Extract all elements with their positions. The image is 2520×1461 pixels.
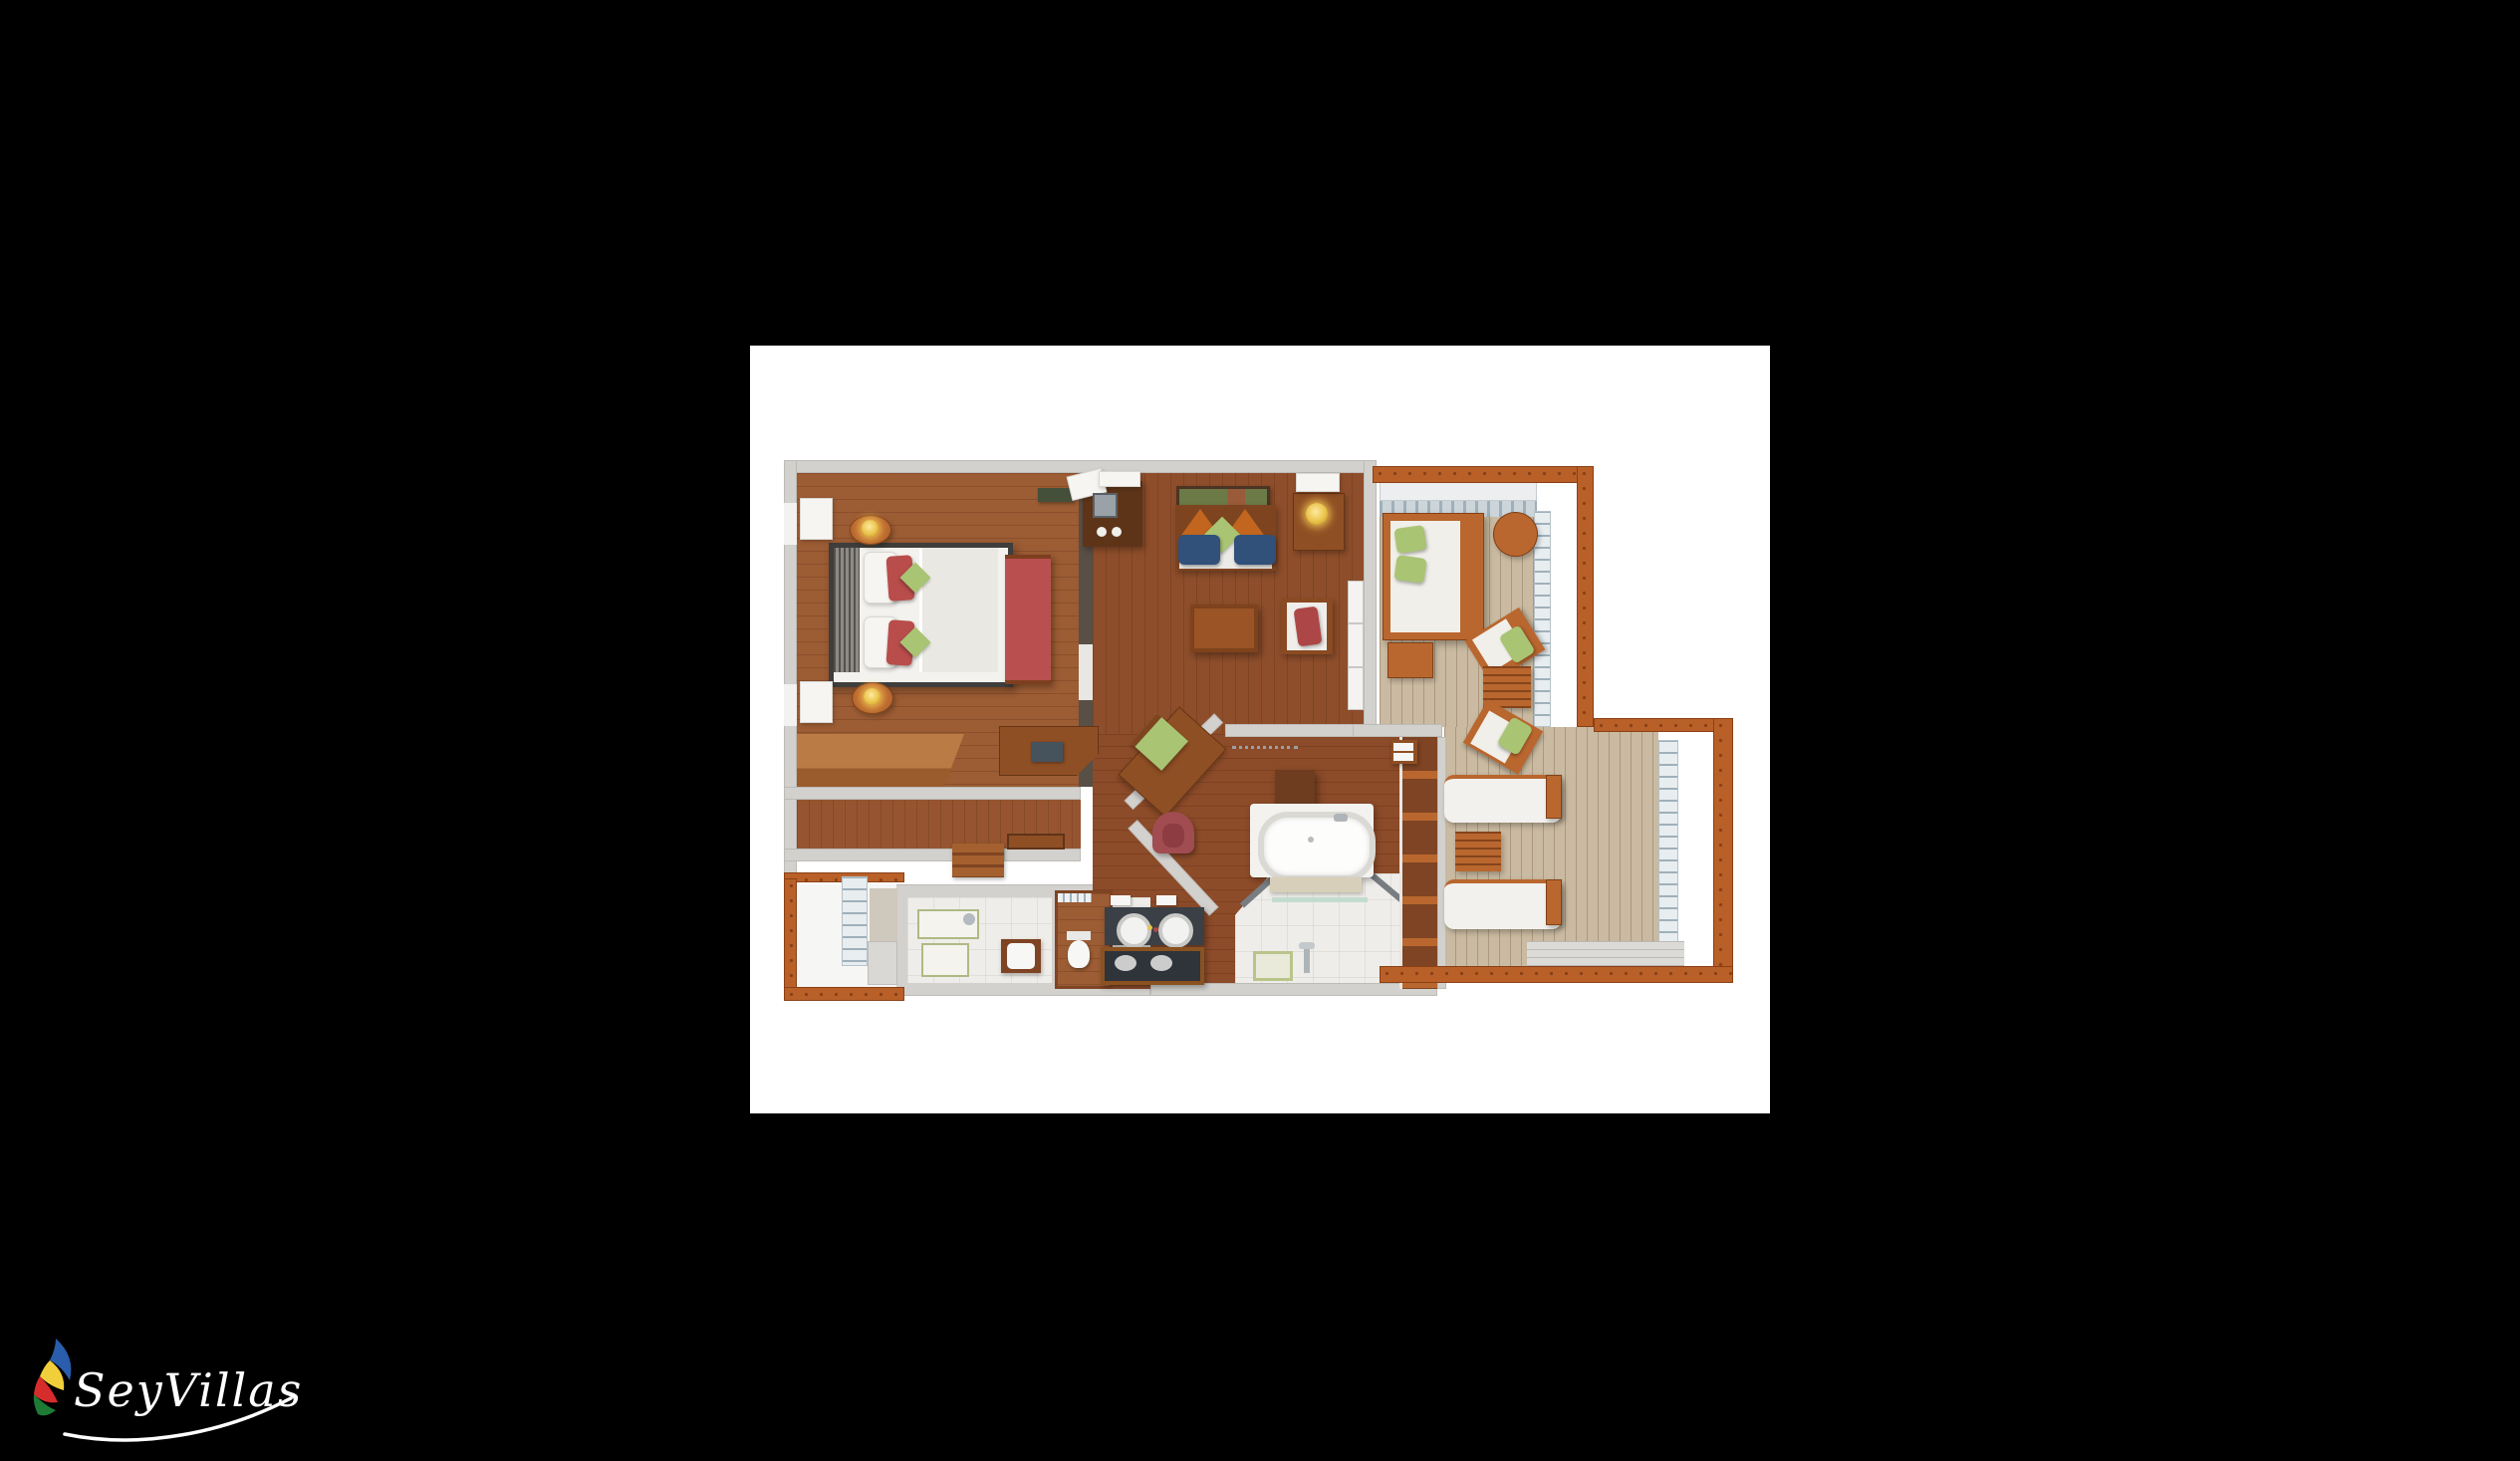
corridor-bench-tray [1007,834,1065,850]
porch-panel [870,888,897,941]
veranda-frame-right-lower [1713,718,1733,983]
wall-top [784,460,1377,473]
cabinet-door-leaf [1296,473,1340,492]
wall-bedroom-bottom [784,787,1081,800]
daybed-pillow-1 [1393,525,1426,554]
wall-corridor-bottom-left [784,849,954,861]
divider-door-white [1079,644,1093,700]
red-chair-seat [1162,824,1184,848]
hanging-rail [1232,738,1298,749]
porch-railing [842,876,868,966]
porch-frame-left [784,878,797,996]
veranda-frame-top-lower [1594,718,1733,732]
louvre-shelf-wall [1399,737,1437,989]
bathtub-drain [1308,837,1314,843]
curtain-1 [800,498,833,540]
wc-toilet-lid [1007,943,1035,969]
seyvillas-logo: SeyVillas [12,1333,351,1454]
daybed-pillow-2 [1393,555,1426,584]
window-bedroom-2 [784,684,797,726]
corridor-steps [952,844,1004,877]
daybed-side-table [1387,642,1433,678]
curtain-2 [800,681,833,723]
pergola-beam [1380,481,1537,501]
outdoor-toilet [1068,940,1090,968]
vanity-basin-2 [1158,913,1193,948]
sun-lounger-1 [1444,775,1562,823]
dresser [797,734,964,787]
towel-bench [1270,877,1362,892]
veranda-frame-bottom [1380,966,1733,983]
porch-step [868,941,897,985]
wc-tap [963,913,975,925]
wall-bath-top-right [1353,724,1442,737]
sofa-cushion-blue-2 [1234,535,1276,565]
floorplan [750,346,1770,1113]
desk-laptop [1031,742,1063,762]
porch-frame-bottom [784,987,904,1001]
rack-towel-1 [1393,743,1413,751]
wall-bath-right-face [1437,737,1446,989]
bath-mat [1253,951,1293,981]
sun-lounger-2-headrest [1546,879,1562,925]
window-bedroom-1 [784,503,797,545]
shower-fixture [1304,947,1310,973]
armchair-pillow [1293,607,1322,647]
veranda-frame-right-upper [1577,466,1594,727]
vanity-basin-1 [1117,913,1151,948]
rack-towel-2 [1393,753,1413,761]
floorplan-canvas [750,346,1770,1113]
bed-headboard [834,548,860,672]
sun-lounger-2 [1444,879,1562,929]
glass-shelf [1272,897,1368,902]
wc-mat-2 [921,943,969,977]
coffee-table [1190,605,1258,652]
veranda-slat-table-lower [1455,832,1501,871]
veranda-steps [1527,941,1684,966]
wardrobe [1348,581,1364,710]
sun-lounger-1-headrest [1546,775,1562,819]
shelf-tray [1038,488,1074,502]
outdoor-toilet-tank [1067,931,1091,940]
bed-bench [1005,555,1051,684]
round-table [1493,512,1538,557]
bath-partition [1275,770,1315,804]
outdoor-room-window [1058,893,1092,902]
bed-duvet [919,548,998,672]
flame-icon [34,1339,72,1415]
coffee-machine [1093,493,1118,518]
entry-door-leaf [1099,471,1140,487]
cabinet-lamp [1306,503,1328,525]
shower-head [1299,942,1315,949]
minibar-cup-2 [1112,527,1122,537]
bathtub [1258,812,1376,881]
vanity-amenities [1147,925,1152,930]
veranda-railing-lower [1658,740,1678,951]
veranda-frame-top [1373,466,1594,483]
nightstand-lamp-top [862,520,879,537]
bathtub-faucet [1334,814,1348,822]
nightstand-lamp-bottom [864,688,881,705]
wall-corridor-bottom-right [1004,849,1081,861]
sofa-cushion-blue-1 [1178,535,1220,565]
veranda-railing-upper [1534,511,1551,727]
screenshot-stage: SeyVillas [0,0,2520,1461]
mirror-reflection-1 [1115,955,1136,971]
minibar-cup-1 [1097,527,1107,537]
vanity-towel-2 [1156,895,1176,905]
vanity-towel-1 [1111,895,1131,905]
mirror-reflection-2 [1150,955,1172,971]
wall-living-right [1364,460,1377,737]
